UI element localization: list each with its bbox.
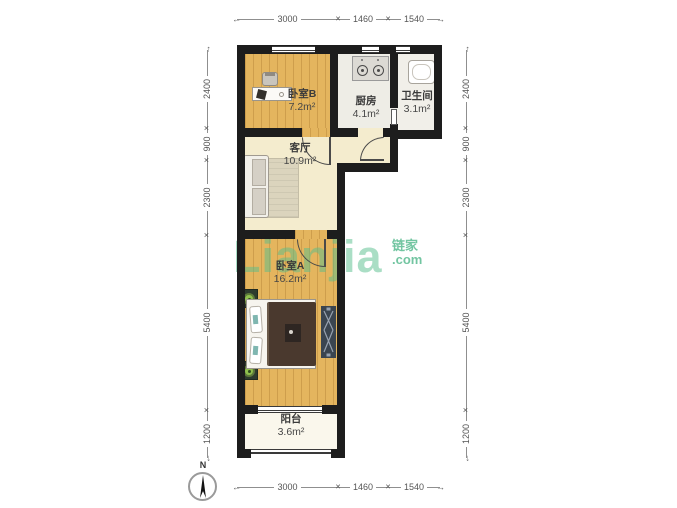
window [362, 46, 379, 53]
wall [327, 230, 337, 239]
dim-label: 1200 [202, 421, 212, 447]
wall [237, 230, 295, 239]
dim-label: 1540 [401, 482, 427, 492]
dimension-line-left: 1200 5400 2300 900 2400 [200, 50, 214, 458]
room-area: 3.1m² [393, 103, 441, 116]
wall [331, 449, 345, 458]
dimension-line-right: 1200 5400 2300 900 2400 [459, 50, 473, 458]
bed-icon [246, 299, 316, 369]
pillow-icon [249, 306, 263, 334]
dim-label: 5400 [202, 309, 212, 335]
room-label-living-room: 客厅 10.9m² [268, 142, 332, 167]
wall [237, 405, 258, 414]
dim-label: 1460 [350, 14, 376, 24]
window [396, 46, 410, 53]
radiator-icon [321, 306, 336, 358]
room-label-balcony: 阳台 3.6m² [259, 413, 323, 438]
room-area: 3.6m² [259, 426, 323, 439]
dimension-line-top: 3000 1460 1540 [237, 12, 440, 26]
dim-label: 1460 [350, 482, 376, 492]
room-name: 卧室B [272, 88, 332, 101]
room-area: 16.2m² [258, 273, 322, 286]
wall [383, 128, 390, 137]
door-leaf [324, 239, 326, 267]
wall [322, 405, 337, 414]
north-label: N [195, 460, 211, 470]
dim-label: 1540 [401, 14, 427, 24]
dim-label: 5400 [461, 309, 471, 335]
dimension-line-bottom: 3000 1460 1540 [237, 480, 440, 494]
dim-label: 900 [461, 133, 471, 154]
wall [237, 45, 442, 54]
sofa-icon [243, 155, 269, 218]
watermark-side: 链家 .com [392, 239, 422, 268]
wall [390, 124, 398, 133]
room-name: 厨房 [337, 95, 395, 108]
floorplan-canvas: Lianjia 链家 .com 卧室B 7.2m² 厨房 4.1m² 卫生间 [0, 0, 677, 508]
watermark-cn: 链家 [392, 239, 422, 253]
room-name: 卧室A [258, 260, 322, 273]
wall [237, 128, 302, 137]
floor-doorway-kitchen [358, 128, 383, 137]
dim-label: 2300 [202, 184, 212, 210]
chair-icon [262, 72, 278, 86]
wall [237, 449, 251, 458]
dim-label: 3000 [274, 14, 300, 24]
dim-label: 2300 [461, 184, 471, 210]
floor-doorway-bedroom-b [302, 128, 330, 137]
room-name: 卫生间 [393, 90, 441, 103]
dim-label: 2400 [461, 76, 471, 102]
wall [337, 163, 398, 172]
dim-label: 3000 [274, 482, 300, 492]
window-sliding-door [258, 406, 322, 413]
room-area: 10.9m² [268, 155, 332, 168]
dim-label: 900 [202, 133, 212, 154]
room-name: 客厅 [268, 142, 332, 155]
stove-icon [352, 56, 389, 81]
compass-needle-icon [198, 475, 208, 498]
window-balcony [251, 449, 331, 454]
wall [237, 45, 245, 458]
room-label-bathroom: 卫生间 3.1m² [393, 90, 441, 115]
watermark-com: .com [392, 253, 422, 267]
window [272, 46, 315, 53]
door-leaf [360, 159, 384, 161]
wall [337, 163, 345, 458]
bathtub-icon [408, 60, 435, 84]
room-label-bedroom-b: 卧室B 7.2m² [272, 88, 332, 113]
blanket-icon [267, 302, 316, 366]
pillow-icon [249, 337, 263, 365]
wall [338, 128, 358, 137]
dim-label: 1200 [461, 421, 471, 447]
room-label-bedroom-a: 卧室A 16.2m² [258, 260, 322, 285]
room-area: 4.1m² [337, 108, 395, 121]
room-area: 7.2m² [272, 101, 332, 114]
compass-icon [188, 472, 217, 501]
room-label-kitchen: 厨房 4.1m² [337, 95, 395, 120]
room-name: 阳台 [259, 413, 323, 426]
dim-label: 2400 [202, 76, 212, 102]
